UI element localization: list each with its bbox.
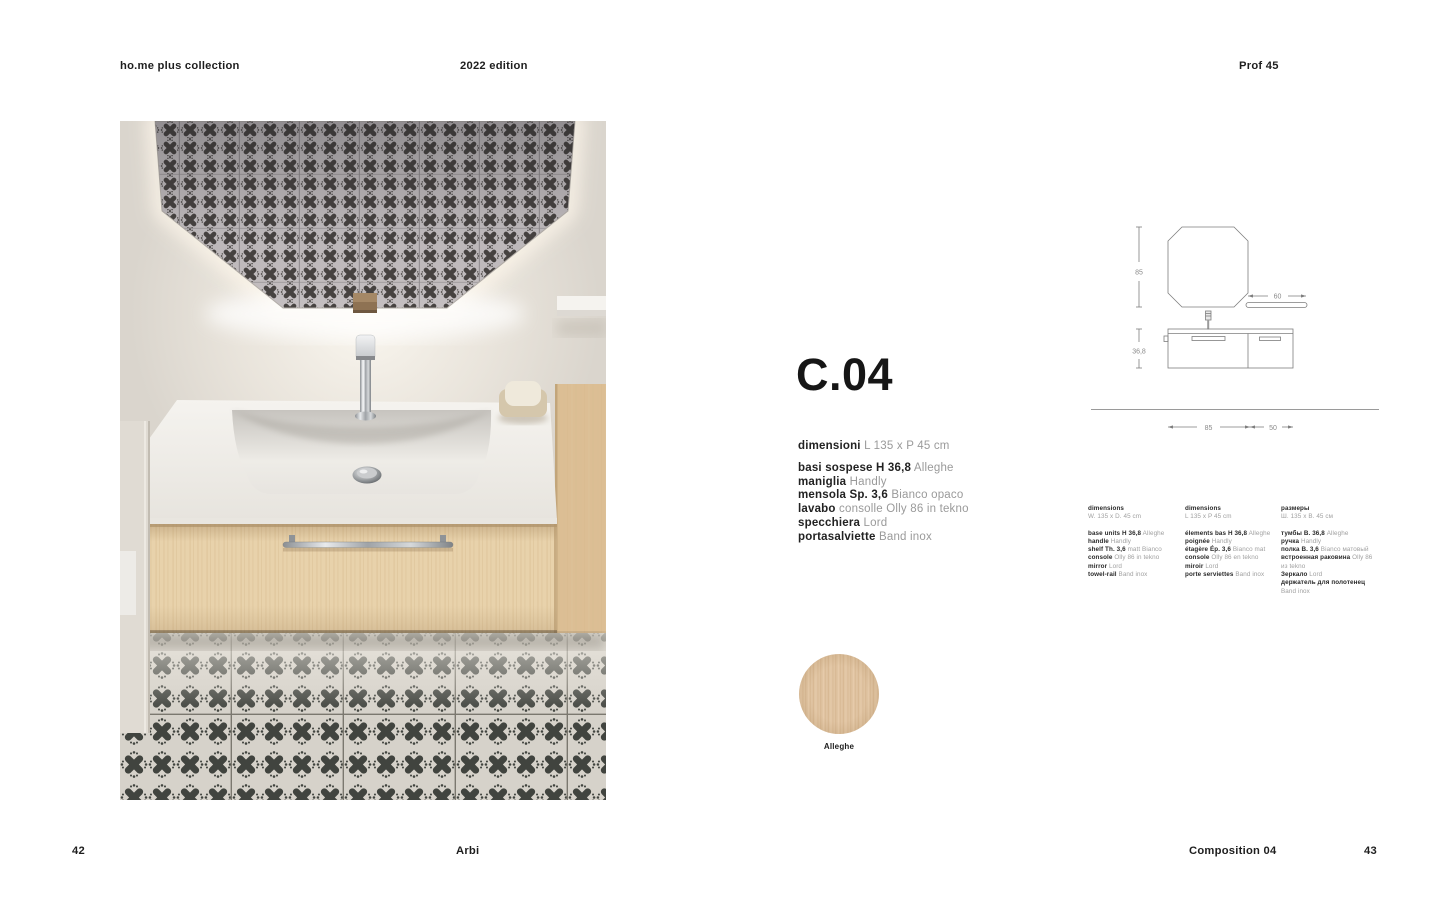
column-line-label: Зеркало [1281, 571, 1307, 578]
column-title: dimensions [1088, 505, 1180, 513]
column-lines: élements bas H 36,8 Alleghe poignée Hand… [1185, 530, 1273, 580]
column-line: держатель для полотенец Band inox [1281, 579, 1377, 596]
column-line: shelf Th. 3,6 matt Bianco [1088, 546, 1180, 554]
column-line-value: Band inox [1235, 571, 1264, 578]
handle-shadow [283, 548, 453, 552]
spec-line: maniglia Handly [798, 476, 1008, 490]
dim-mirror-height: 85 [1135, 270, 1143, 277]
faucet-highlight [363, 360, 365, 414]
profile-label: Prof 45 [1239, 60, 1279, 72]
column-line-value: Alleghe [1143, 530, 1165, 537]
spec-label: mensola Sp. 3,6 [798, 489, 888, 501]
column-line-label: élements bas H 36,8 [1185, 530, 1247, 537]
spec-value: Lord [864, 517, 888, 529]
column-line-value: Bianco mat [1233, 546, 1266, 553]
product-photo [120, 121, 606, 800]
drain-cap-top [357, 468, 377, 479]
column-line-value: Lord [1109, 563, 1122, 570]
column-subtitle: Ш. 135 x В. 45 см [1281, 513, 1377, 521]
column-line-label: miroir [1185, 563, 1203, 570]
faucet-band [356, 356, 375, 360]
wood-side-grain [555, 384, 606, 633]
column-line-value: Lord [1309, 571, 1322, 578]
column-line-label: étagère Ép. 3,6 [1185, 546, 1231, 553]
spec-line: portasalviette Band inox [798, 531, 1008, 545]
doorway-light [120, 551, 136, 615]
column-line-label: тумбы В. 36,8 [1281, 530, 1325, 537]
vanity-top-shadow [122, 524, 557, 527]
column-line-label: handle [1088, 538, 1109, 545]
swatch-graphic [797, 652, 881, 736]
spec-label: lavabo [798, 503, 836, 515]
collection-title: ho.me plus collection [120, 60, 240, 72]
spec-column-ru: размеры Ш. 135 x В. 45 см тумбы В. 36,8 … [1281, 505, 1377, 596]
floor-shadow [120, 633, 606, 649]
technical-drawing-graphic: 85 60 36,8 85 50 [1085, 215, 1385, 440]
column-line: handle Handly [1088, 538, 1180, 546]
spec-label: maniglia [798, 476, 846, 488]
column-line-value: Handly [1301, 538, 1321, 545]
spec-label: basi sospese H 36,8 [798, 462, 911, 474]
left-wall-edge [148, 421, 150, 733]
column-line: Зеркало Lord [1281, 571, 1377, 579]
column-line: ручка Handly [1281, 538, 1377, 546]
finish-swatch [797, 652, 881, 736]
column-line-value: Bianco матовый [1321, 546, 1369, 553]
dimensions-line: dimensioni L 135 x P 45 cm [798, 440, 950, 452]
vanity-right-seam [554, 524, 557, 633]
drawing-faucet [1206, 311, 1212, 320]
product-code: C.04 [796, 352, 893, 397]
column-line: towel-rail Band inox [1088, 571, 1180, 579]
spec-list: basi sospese H 36,8 Alleghe maniglia Han… [798, 462, 1008, 544]
swatch-label: Alleghe [797, 742, 881, 751]
column-lines: тумбы В. 36,8 Alleghe ручка Handly полка… [1281, 530, 1377, 596]
column-line-value: Handly [1111, 538, 1131, 545]
faucet-base [355, 412, 376, 421]
column-line-label: poignée [1185, 538, 1210, 545]
page-number-right: 43 [1364, 845, 1377, 857]
wood-swatch-shade [799, 654, 879, 734]
drawing-handle-right [1260, 337, 1281, 341]
dim-base-width-left: 85 [1205, 425, 1213, 432]
column-line-value: Band inox [1119, 571, 1148, 578]
wood-niche-shadow [353, 310, 377, 313]
spec-column-en: dimensions W. 135 x D. 45 cm base units … [1088, 505, 1180, 579]
column-title: размеры [1281, 505, 1377, 513]
column-line-value: Olly 86 en tekno [1211, 554, 1258, 561]
dim-base-width-right: 50 [1269, 425, 1277, 432]
column-line-label: towel-rail [1088, 571, 1117, 578]
column-line-label: mirror [1088, 563, 1107, 570]
drain-highlight [360, 470, 368, 474]
spec-value: Handly [850, 476, 887, 488]
column-line: élements bas H 36,8 Alleghe [1185, 530, 1273, 538]
spec-value: consolle Olly 86 in tekno [839, 503, 969, 515]
spec-line: specchiera Lord [798, 517, 1008, 531]
vanity-shading [122, 524, 557, 633]
column-line-label: полка В. 3,6 [1281, 546, 1319, 553]
column-line-value: Lord [1205, 563, 1218, 570]
column-line: miroir Lord [1185, 563, 1273, 571]
spec-value: Band inox [879, 531, 932, 543]
column-line: встроенная раковина Olly 86 из tekno [1281, 554, 1377, 571]
shelf-shadow [557, 320, 606, 336]
column-line-value: Alleghe [1249, 530, 1271, 537]
spec-line: lavabo consolle Olly 86 in tekno [798, 503, 1008, 517]
column-subtitle: W. 135 x D. 45 cm [1088, 513, 1180, 521]
page-number-left: 42 [72, 845, 85, 857]
column-line: étagère Ép. 3,6 Bianco mat [1185, 546, 1273, 554]
left-wall-highlight [144, 421, 146, 733]
column-line: тумбы В. 36,8 Alleghe [1281, 530, 1377, 538]
spec-line: mensola Sp. 3,6 Bianco opaco [798, 489, 1008, 503]
column-line-label: shelf Th. 3,6 [1088, 546, 1126, 553]
column-title: dimensions [1185, 505, 1273, 513]
wall-shelf-edge [557, 310, 606, 316]
spec-label: specchiera [798, 517, 860, 529]
dim-shelf-width: 60 [1274, 294, 1282, 301]
spec-label: portasalviette [798, 531, 876, 543]
drawing-handle-left [1192, 337, 1225, 341]
column-lines: base units H 36,8 Alleghe handle Handly … [1088, 530, 1180, 580]
column-line-value: matt Bianco [1128, 546, 1162, 553]
column-line: console Olly 86 in tekno [1088, 554, 1180, 562]
edition-label: 2022 edition [460, 60, 528, 72]
catalog-spread: ho.me plus collection 2022 edition Prof … [0, 0, 1453, 920]
drawing-vanity [1168, 329, 1293, 368]
column-line-value: Alleghe [1327, 530, 1349, 537]
faucet-body [360, 360, 371, 414]
column-line: console Olly 86 en tekno [1185, 554, 1273, 562]
column-line: poignée Handly [1185, 538, 1273, 546]
spec-column-fr: dimensions L 135 x P 45 cm élements bas … [1185, 505, 1273, 579]
column-line: mirror Lord [1088, 563, 1180, 571]
column-line-value: Band inox [1281, 588, 1310, 595]
soap-bar [505, 381, 541, 406]
wall-shelf [557, 296, 606, 312]
column-line-label: держатель для полотенец [1281, 579, 1365, 586]
column-line: porte serviettes Band inox [1185, 571, 1273, 579]
dim-base-height: 36,8 [1132, 349, 1146, 356]
brand-name: Arbi [456, 845, 479, 857]
chrome-handle [283, 542, 453, 548]
technical-drawing: 85 60 36,8 85 50 [1085, 215, 1385, 440]
wood-niche-top [353, 293, 377, 302]
bathroom-photo-graphic [120, 121, 606, 800]
column-line-label: porte serviettes [1185, 571, 1234, 578]
drawing-shelf [1246, 303, 1307, 308]
drawing-faucet-stem [1207, 320, 1209, 330]
column-subtitle: L 135 x P 45 cm [1185, 513, 1273, 521]
column-line-label: console [1088, 554, 1113, 561]
composition-label: Composition 04 [1189, 845, 1276, 857]
column-line-value: Handly [1212, 538, 1232, 545]
drawing-bracket [1164, 336, 1168, 342]
column-line: полка В. 3,6 Bianco матовый [1281, 546, 1377, 554]
dimensions-value: L 135 x P 45 cm [864, 440, 949, 452]
column-line-label: base units H 36,8 [1088, 530, 1141, 537]
spec-value: Alleghe [914, 462, 954, 474]
column-line-value: Olly 86 in tekno [1114, 554, 1159, 561]
drawing-mirror-octagon [1168, 227, 1248, 307]
spec-value: Bianco opaco [891, 489, 963, 501]
spec-line: basi sospese H 36,8 Alleghe [798, 462, 1008, 476]
column-line: base units H 36,8 Alleghe [1088, 530, 1180, 538]
dimensions-label: dimensioni [798, 440, 861, 452]
column-line-label: ручка [1281, 538, 1299, 545]
column-line-label: console [1185, 554, 1210, 561]
column-line-label: встроенная раковина [1281, 554, 1350, 561]
